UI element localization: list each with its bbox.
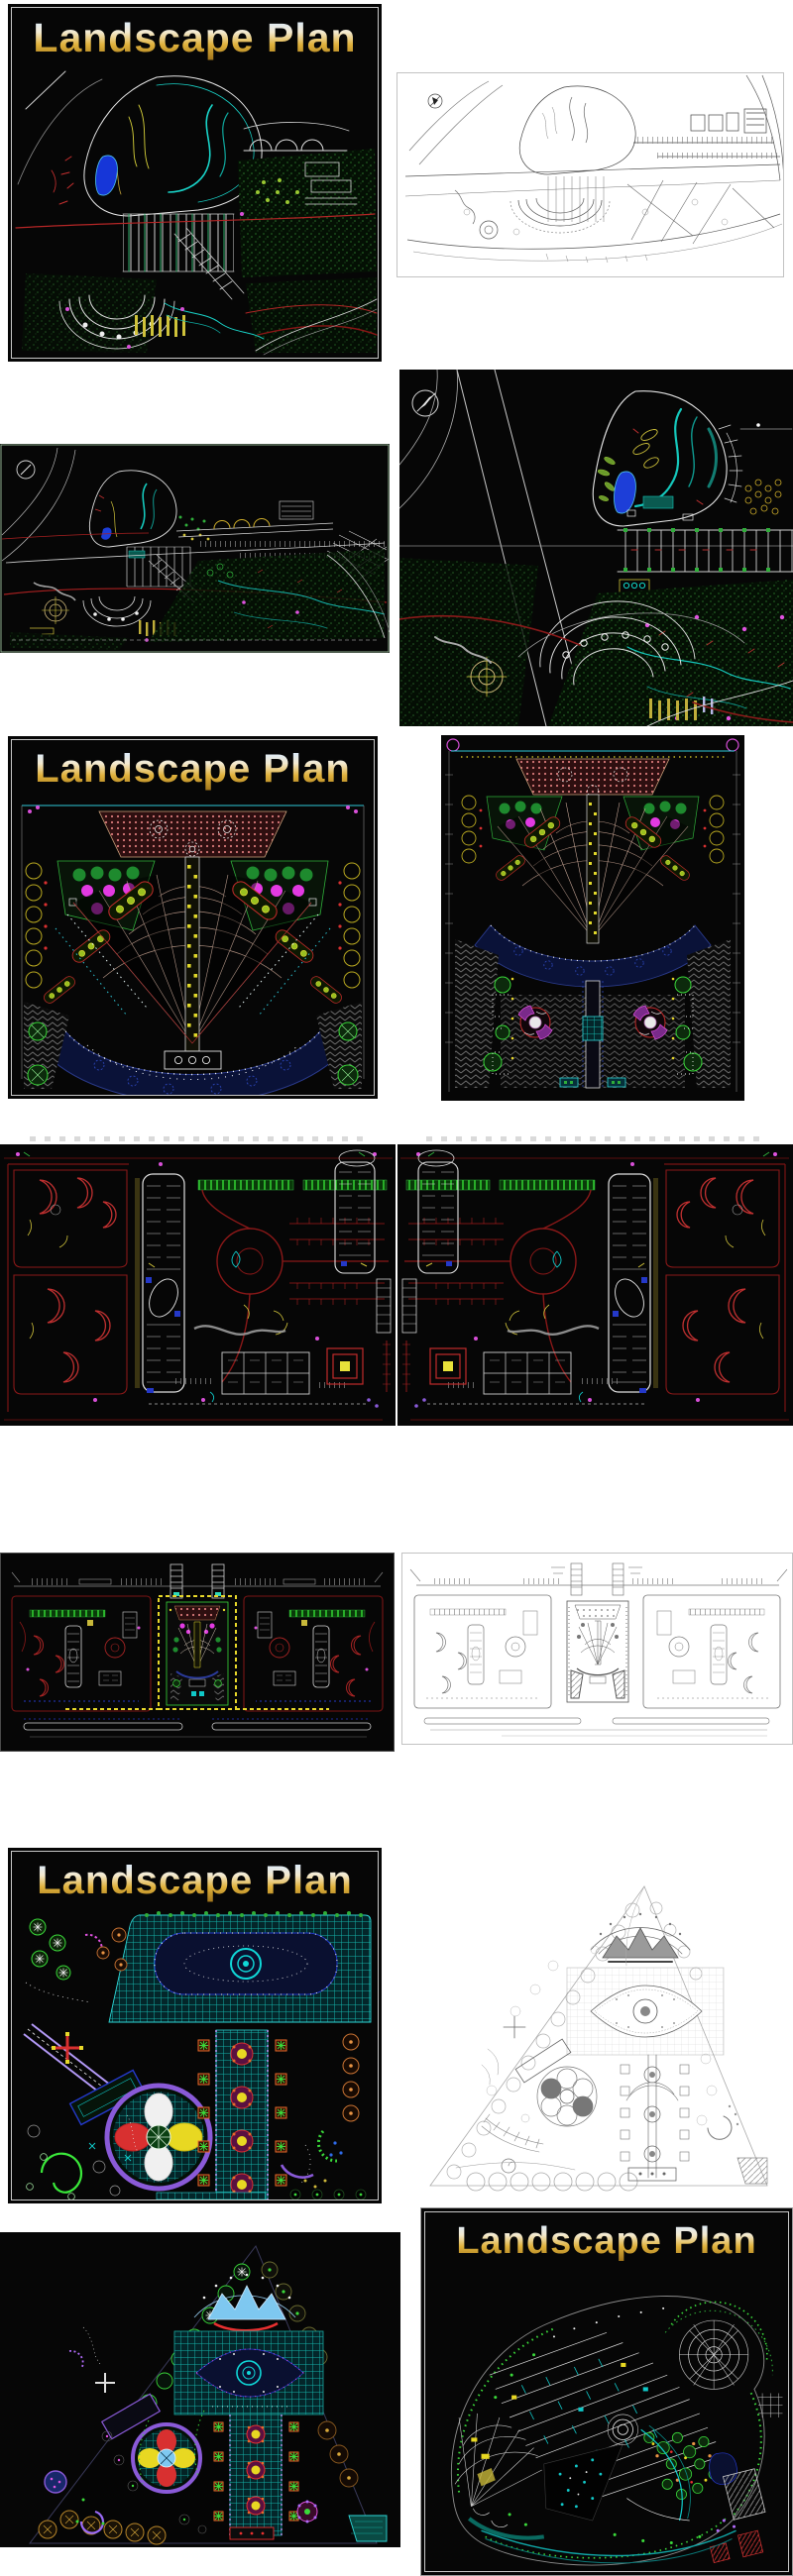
compass-icon	[17, 461, 35, 479]
hatch-smudge	[30, 1136, 367, 1141]
hillside-plan-drawing	[8, 65, 382, 359]
plan-thumbnail-resort-left	[0, 1144, 396, 1426]
fan-plaza-tall-drawing	[441, 735, 744, 1101]
plan-thumbnail-triangle-light	[396, 1871, 789, 2200]
pond	[615, 472, 636, 513]
compass-icon	[428, 94, 442, 108]
plan-thumbnail-hillside-dark: Landscape Plan	[8, 4, 382, 362]
garden-plan-drawing	[8, 1907, 382, 2200]
panorama-light-drawing	[402, 1554, 792, 1744]
plan-title: Landscape Plan	[8, 1848, 382, 1907]
plan-thumbnail-triangle-dark	[0, 2232, 400, 2547]
hillside-zoom-drawing	[399, 370, 793, 726]
spider-web-plaza	[679, 2320, 747, 2389]
plan-thumbnail-hillside-full-dark	[0, 444, 390, 653]
hatched-building	[723, 2469, 765, 2520]
resort-site-drawing-mirrored	[397, 1144, 793, 1426]
plan-title: Landscape Plan	[421, 2208, 792, 2266]
plan-thumbnail-hillside-light	[396, 72, 784, 277]
triangle-light-drawing	[396, 1871, 789, 2200]
plan-thumbnail-resort-right	[397, 1144, 793, 1426]
triangle-dark-drawing	[0, 2232, 400, 2547]
plan-thumbnail-hillside-zoom	[399, 370, 793, 726]
plan-thumbnail-panorama-dark	[0, 1553, 395, 1752]
panorama-dark-drawing	[0, 1553, 395, 1752]
fan-plaza-drawing	[8, 796, 378, 1095]
flower-circle	[537, 2067, 597, 2126]
pond	[96, 156, 118, 195]
compass-icon	[412, 390, 438, 416]
plan-thumbnail-garden-titled: Landscape Plan	[8, 1848, 382, 2203]
contour-crescents	[40, 1178, 116, 1382]
plans-collage: Landscape Plan	[0, 0, 793, 2576]
crown-stage	[591, 1913, 690, 1962]
hillside-light-drawing	[397, 73, 783, 276]
roundabout	[217, 1229, 283, 1294]
resort-site-drawing	[0, 1144, 396, 1426]
plan-thumbnail-panorama-light	[401, 1553, 793, 1745]
plan-title: Landscape Plan	[8, 736, 378, 796]
plan-title: Landscape Plan	[8, 4, 382, 65]
curved-community-drawing	[421, 2266, 792, 2569]
plan-thumbnail-fan-plaza-tall	[441, 735, 744, 1101]
flower-mosaic	[107, 2086, 210, 2189]
upper-plaza	[99, 811, 286, 857]
plan-thumbnail-fan-plaza-titled: Landscape Plan	[8, 736, 378, 1099]
mini-fan-plaza	[167, 1602, 228, 1705]
hillside-full-dark-drawing	[0, 444, 390, 653]
plan-thumbnail-curved-community: Landscape Plan	[420, 2207, 793, 2576]
hatch-smudge	[426, 1136, 763, 1141]
